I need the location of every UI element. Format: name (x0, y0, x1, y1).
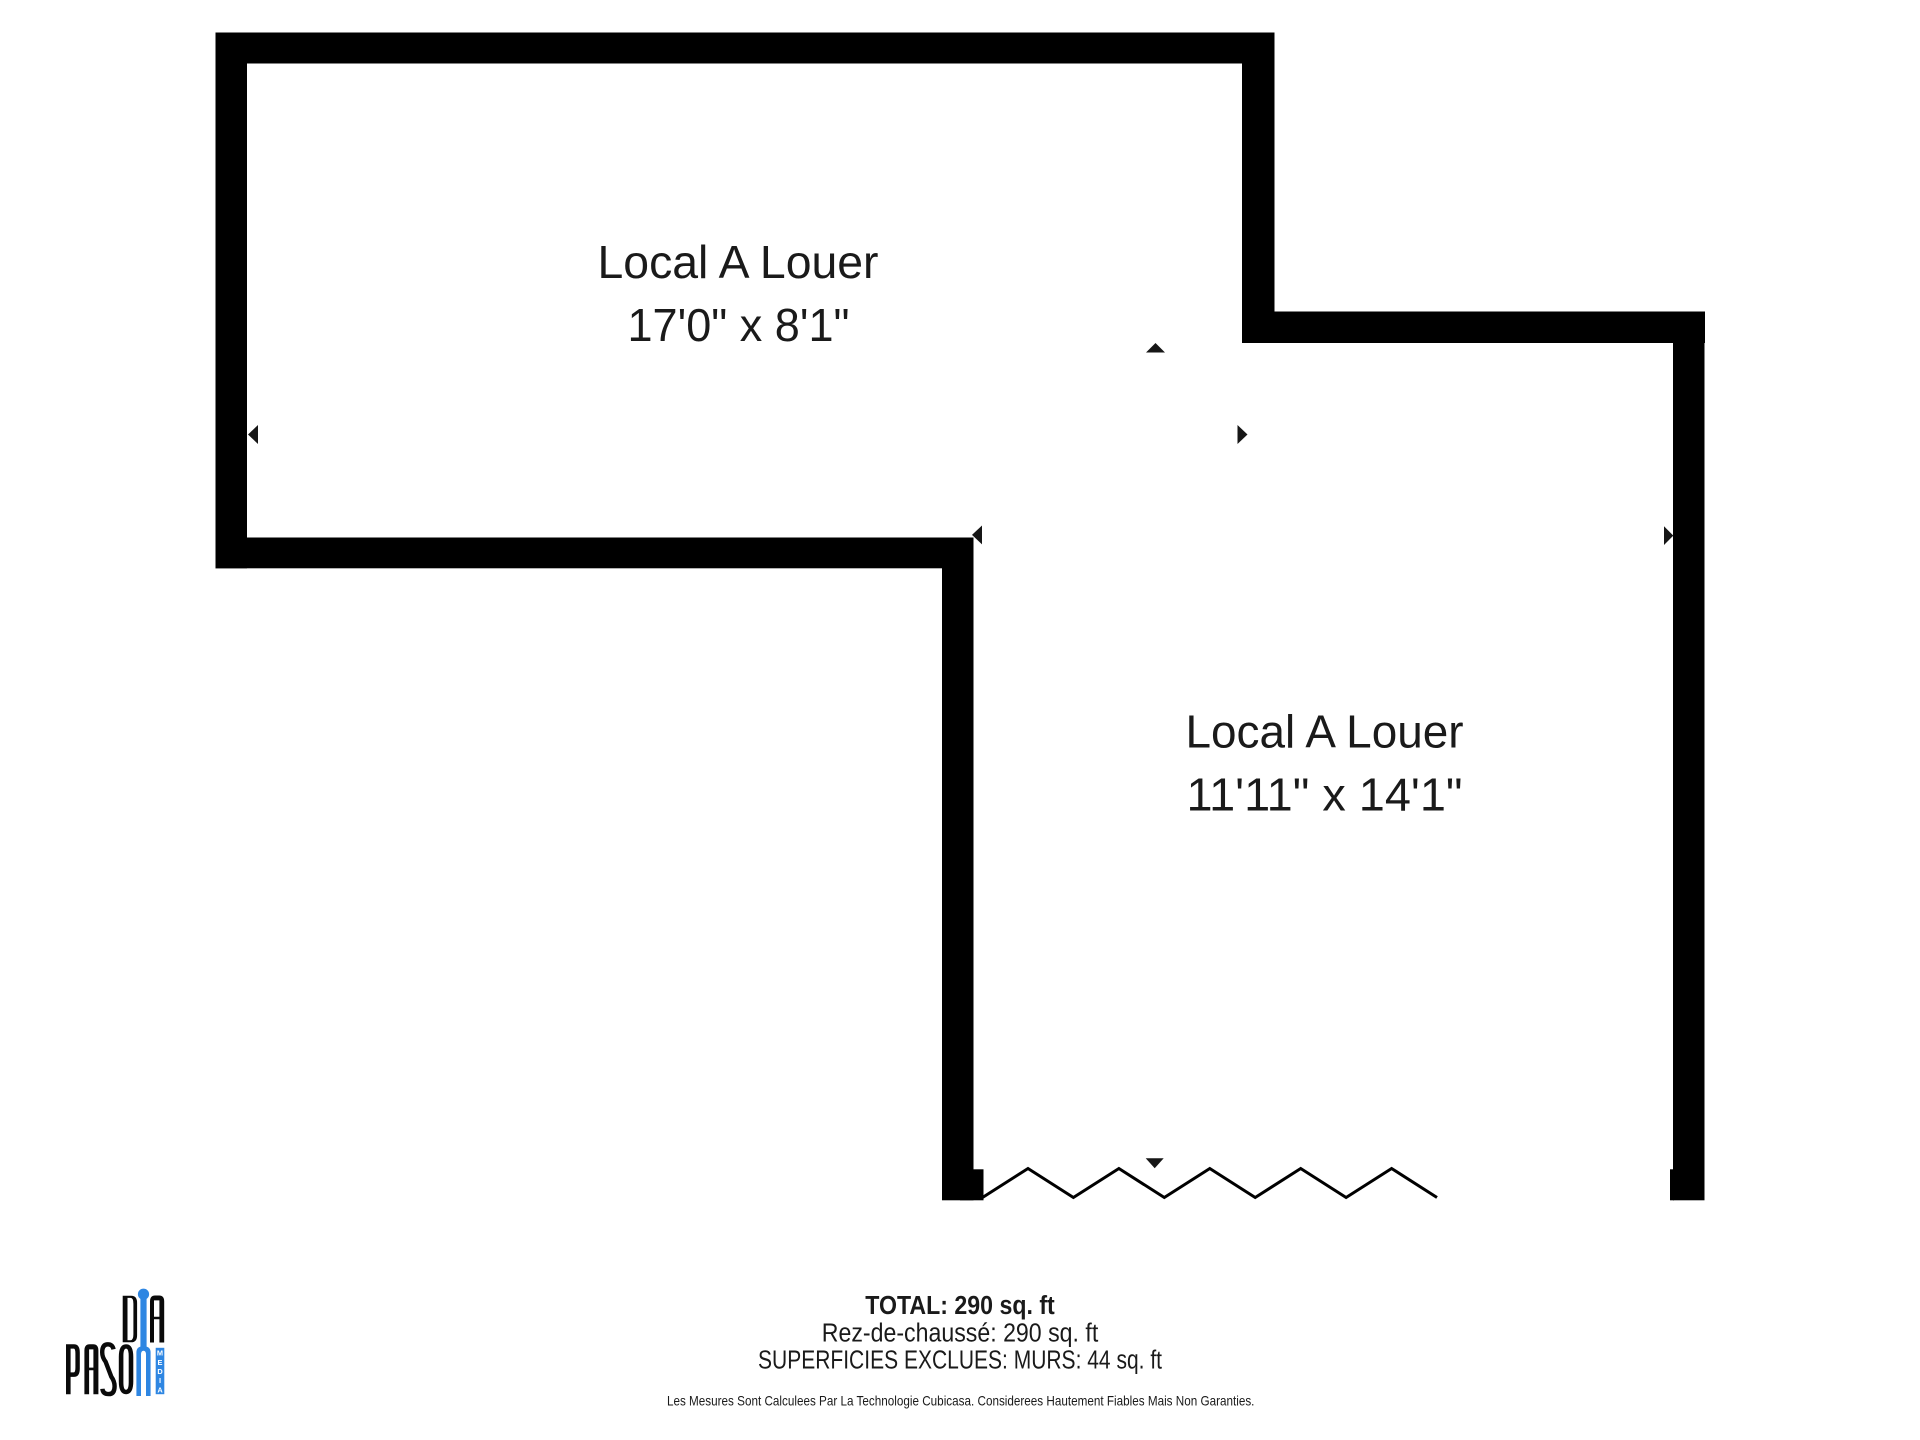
svg-text:TOTAL: 290 sq. ft: TOTAL: 290 sq. ft (865, 1292, 1055, 1320)
svg-text:Les Mesures Sont Calculees Par: Les Mesures Sont Calculees Par La Techno… (667, 1393, 1255, 1409)
svg-text:Rez-de-chaussé: 290 sq. ft: Rez-de-chaussé: 290 sq. ft (822, 1319, 1099, 1347)
svg-text:Local A Louer: Local A Louer (598, 236, 879, 288)
svg-text:D: D (157, 1367, 163, 1376)
svg-text:I: I (159, 1376, 161, 1385)
svg-text:A: A (157, 1385, 163, 1394)
svg-text:17'0" x 8'1": 17'0" x 8'1" (628, 299, 850, 351)
svg-text:M: M (157, 1349, 163, 1358)
svg-text:SUPERFICIES EXCLUES: MURS: 44: SUPERFICIES EXCLUES: MURS: 44 sq. ft (758, 1346, 1162, 1374)
svg-text:11'11" x 14'1": 11'11" x 14'1" (1187, 768, 1463, 820)
svg-text:Local A Louer: Local A Louer (1186, 705, 1464, 757)
svg-text:E: E (158, 1358, 163, 1367)
